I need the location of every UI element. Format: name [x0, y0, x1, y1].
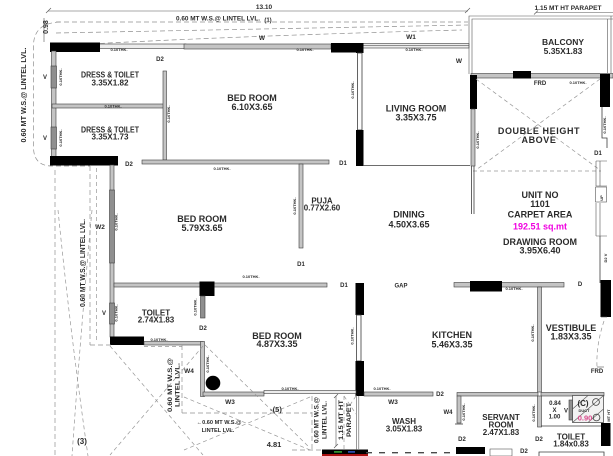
svg-text:(C): (C) — [577, 399, 588, 408]
svg-text:0.10THK.: 0.10THK. — [193, 298, 198, 315]
svg-text:D1: D1 — [594, 151, 602, 157]
svg-text:3.05X1.83: 3.05X1.83 — [386, 425, 423, 434]
svg-text:0.84: 0.84 — [549, 401, 561, 407]
svg-text:0.60 MT W.S.@ LINTEL LVL.: 0.60 MT W.S.@ LINTEL LVL. — [19, 48, 28, 143]
svg-text:5.35X1.83: 5.35X1.83 — [544, 46, 583, 56]
svg-text:0.10THK.: 0.10THK. — [58, 129, 63, 146]
svg-text:0.10THK.: 0.10THK. — [166, 105, 171, 122]
svg-text:LINTEL LVL.: LINTEL LVL. — [202, 428, 235, 434]
svg-text:192.51 sq.mt: 192.51 sq.mt — [513, 222, 567, 232]
svg-text:DINING: DINING — [393, 210, 425, 220]
svg-text:0.10THK.: 0.10THK. — [475, 131, 480, 148]
svg-text:W3: W3 — [225, 399, 235, 406]
svg-text:D2: D2 — [156, 57, 164, 63]
svg-text:0.10THK.: 0.10THK. — [405, 47, 422, 52]
svg-text:V: V — [43, 75, 47, 81]
svg-text:13.10: 13.10 — [256, 4, 273, 11]
svg-text:D2: D2 — [520, 449, 528, 455]
svg-text:D: D — [578, 282, 583, 288]
svg-text:D2: D2 — [199, 326, 207, 332]
svg-text:0.10THK.: 0.10THK. — [110, 47, 127, 52]
svg-text:D1: D1 — [339, 161, 347, 167]
svg-text:0.10THK.: 0.10THK. — [205, 355, 210, 372]
svg-text:0.10THK.: 0.10THK. — [350, 327, 355, 344]
svg-text:0.10THK.: 0.10THK. — [350, 81, 355, 98]
svg-text:D1: D1 — [340, 283, 348, 289]
svg-text:5.46X3.35: 5.46X3.35 — [431, 340, 472, 350]
svg-text:-(5): -(5) — [270, 405, 282, 414]
svg-text:0.10THK.: 0.10THK. — [114, 304, 119, 321]
svg-text:1.83X3.35: 1.83X3.35 — [550, 332, 591, 342]
svg-text:D1: D1 — [297, 262, 305, 268]
svg-text:0.60 MT W.S.@ LINTEL LVL.: 0.60 MT W.S.@ LINTEL LVL. — [176, 16, 260, 23]
svg-text:W: W — [259, 35, 266, 42]
svg-text:ABOVE: ABOVE — [521, 135, 556, 145]
svg-text:D2: D2 — [458, 437, 466, 443]
svg-text:6.10X3.65: 6.10X3.65 — [231, 102, 272, 112]
svg-text:5.79X3.65: 5.79X3.65 — [181, 223, 222, 233]
svg-text:3.35X3.75: 3.35X3.75 — [395, 113, 436, 123]
svg-text:GAP: GAP — [394, 284, 407, 290]
svg-text:1.00: 1.00 — [549, 415, 561, 421]
svg-text:4.50X3.65: 4.50X3.65 — [388, 220, 429, 230]
svg-text:V: V — [564, 409, 568, 415]
svg-text:1.15 MT HT: 1.15 MT HT — [338, 400, 345, 440]
svg-text:W: W — [456, 58, 463, 65]
svg-text:2.74X1.83: 2.74X1.83 — [138, 316, 175, 325]
svg-text:0.10THK.: 0.10THK. — [292, 197, 297, 214]
svg-text:0.10THK.: 0.10THK. — [58, 68, 63, 85]
svg-text:1.84x0.83: 1.84x0.83 — [553, 440, 589, 449]
svg-text:3.35X1.82: 3.35X1.82 — [92, 79, 130, 88]
svg-text:0.98: 0.98 — [43, 20, 50, 34]
svg-text:V: V — [102, 311, 106, 317]
svg-text:W3: W3 — [388, 399, 398, 406]
svg-text:0.60 MT W.S.@ LINTEL LVL.: 0.60 MT W.S.@ LINTEL LVL. — [80, 219, 87, 307]
svg-text:FRD: FRD — [591, 369, 604, 375]
svg-text:0.10THK.: 0.10THK. — [505, 286, 522, 291]
svg-text:D2: D2 — [535, 437, 543, 443]
svg-text:0.10THK.: 0.10THK. — [373, 386, 390, 391]
svg-text:FRD: FRD — [534, 81, 547, 87]
svg-text:0.60 MT W.S.@: 0.60 MT W.S.@ — [314, 397, 321, 443]
svg-text:0.10THK.: 0.10THK. — [602, 116, 607, 133]
svg-text:0.90: 0.90 — [578, 414, 593, 423]
svg-text:0.77X2.60: 0.77X2.60 — [304, 204, 341, 213]
svg-text:W4: W4 — [184, 368, 194, 375]
svg-text:3.35X1.73: 3.35X1.73 — [92, 133, 130, 142]
svg-text:(3): (3) — [77, 437, 87, 446]
svg-text:0.10THK.: 0.10THK. — [281, 386, 298, 391]
svg-text:0.10THK.: 0.10THK. — [242, 274, 259, 279]
svg-text:0.10THK.: 0.10THK. — [213, 166, 230, 171]
svg-text:X: X — [552, 408, 556, 414]
svg-text:D2: D2 — [436, 392, 444, 398]
svg-text:0.10THK.: 0.10THK. — [461, 403, 466, 420]
svg-text:0.60 MT W.S.@: 0.60 MT W.S.@ — [167, 358, 174, 412]
svg-text:D2: D2 — [125, 162, 133, 168]
svg-text:UP: UP — [599, 195, 604, 201]
svg-text:KITCHEN: KITCHEN — [432, 330, 472, 340]
svg-text:W1: W1 — [406, 34, 416, 41]
svg-text:PARAPET: PARAPET — [346, 403, 353, 437]
svg-text:0.10THK.: 0.10THK. — [104, 104, 121, 109]
svg-text:0.10THK.: 0.10THK. — [569, 80, 586, 85]
svg-text:0.10THK.: 0.10THK. — [531, 404, 536, 421]
svg-text:(1): (1) — [264, 18, 271, 24]
svg-text:DUCT: DUCT — [578, 408, 590, 413]
svg-text:CARPET AREA: CARPET AREA — [508, 210, 573, 220]
svg-text:1101: 1101 — [530, 199, 550, 209]
svg-text:2.47X1.83: 2.47X1.83 — [483, 428, 520, 437]
svg-text:W4: W4 — [444, 410, 454, 416]
svg-text:←0.60 MT W.S.@: ←0.60 MT W.S.@ — [197, 420, 242, 426]
svg-text:0.10THK.: 0.10THK. — [296, 47, 313, 52]
svg-text:D2 V: D2 V — [603, 253, 608, 262]
svg-text:1.15 MT HT PARAPET: 1.15 MT HT PARAPET — [535, 5, 602, 12]
svg-text:V: V — [43, 136, 47, 142]
svg-text:4.81: 4.81 — [267, 440, 282, 449]
svg-text:4.87X3.35: 4.87X3.35 — [256, 339, 297, 349]
svg-text:0.10THK.: 0.10THK. — [114, 213, 119, 230]
svg-text:0.10THK.: 0.10THK. — [530, 324, 535, 341]
svg-text:LINTEL LVL.: LINTEL LVL. — [175, 363, 182, 407]
svg-text:LINTEL LVL.: LINTEL LVL. — [322, 401, 329, 439]
svg-text:3.95X6.40: 3.95X6.40 — [519, 246, 560, 256]
